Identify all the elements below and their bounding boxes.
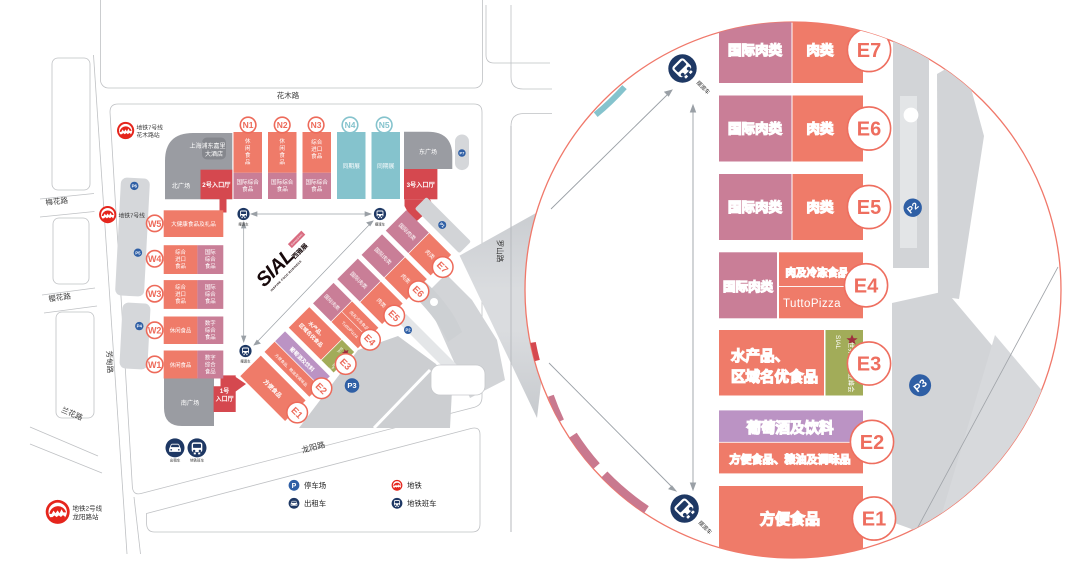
svg-text:综合: 综合 — [175, 248, 186, 256]
svg-text:食品: 食品 — [242, 185, 254, 193]
svg-text:休: 休 — [279, 137, 285, 145]
svg-text:地铁: 地铁 — [407, 481, 422, 490]
svg-text:食品: 食品 — [205, 333, 216, 341]
svg-text:N3: N3 — [311, 120, 322, 130]
svg-text:E1: E1 — [862, 509, 886, 531]
svg-text:食: 食 — [245, 151, 251, 159]
svg-text:食品: 食品 — [205, 297, 216, 305]
svg-text:休: 休 — [245, 137, 251, 145]
svg-text:北广场: 北广场 — [172, 182, 191, 190]
svg-text:肉类: 肉类 — [807, 121, 835, 137]
svg-text:摆渡车: 摆渡车 — [375, 222, 386, 227]
svg-text:地铁7号线: 地铁7号线 — [119, 212, 146, 220]
svg-text:N5: N5 — [379, 120, 390, 130]
svg-text:TuttoPizza: TuttoPizza — [783, 298, 841, 310]
svg-text:水产品、: 水产品、 — [731, 347, 789, 365]
svg-text:国际肉类: 国际肉类 — [728, 121, 782, 137]
svg-text:国际肉类: 国际肉类 — [728, 42, 782, 58]
svg-text:P4: P4 — [137, 324, 143, 329]
svg-text:方便食品、粮油及调味品: 方便食品、粮油及调味品 — [730, 452, 851, 466]
svg-text:品: 品 — [279, 159, 285, 166]
svg-text:花木路: 花木路 — [277, 90, 300, 100]
svg-text:龙阳路站: 龙阳路站 — [73, 512, 100, 521]
svg-text:闲: 闲 — [279, 144, 285, 152]
svg-text:罗山路: 罗山路 — [496, 240, 506, 263]
svg-text:P7: P7 — [459, 150, 465, 155]
svg-text:1号: 1号 — [220, 387, 229, 395]
svg-text:W1: W1 — [148, 360, 162, 370]
svg-text:葡萄酒及饮料: 葡萄酒及饮料 — [746, 419, 834, 437]
svg-text:国际综合: 国际综合 — [271, 178, 294, 186]
svg-text:数字: 数字 — [205, 354, 216, 362]
svg-text:国际肉类: 国际肉类 — [723, 279, 774, 294]
svg-text:SIAL: SIAL — [834, 335, 841, 349]
svg-text:品: 品 — [245, 159, 251, 166]
svg-text:N1: N1 — [243, 120, 254, 130]
svg-text:出租车: 出租车 — [170, 458, 181, 463]
svg-text:摆渡车: 摆渡车 — [238, 222, 249, 227]
svg-text:E3: E3 — [857, 354, 881, 376]
svg-text:P5: P5 — [135, 250, 141, 255]
svg-text:区域名优食品: 区域名优食品 — [731, 368, 818, 386]
svg-text:国际综合: 国际综合 — [306, 178, 329, 186]
svg-text:食品: 食品 — [175, 297, 186, 305]
svg-text:东广场: 东广场 — [419, 148, 437, 156]
svg-text:P2: P2 — [405, 328, 411, 333]
svg-text:W5: W5 — [148, 219, 162, 229]
svg-text:南广场: 南广场 — [181, 399, 200, 407]
svg-text:地铁7号线: 地铁7号线 — [137, 124, 164, 132]
svg-text:大健康食品及礼品: 大健康食品及礼品 — [171, 220, 216, 228]
svg-text:综合: 综合 — [311, 138, 323, 146]
svg-text:肉类: 肉类 — [807, 199, 835, 215]
svg-text:国际肉类: 国际肉类 — [728, 199, 782, 215]
svg-text:同期展: 同期展 — [377, 163, 395, 170]
svg-text:N4: N4 — [345, 120, 356, 130]
svg-text:摆渡车: 摆渡车 — [240, 359, 251, 364]
svg-text:食品: 食品 — [277, 185, 289, 193]
svg-text:闲: 闲 — [245, 144, 251, 152]
svg-text:E4: E4 — [854, 275, 879, 297]
svg-text:国际: 国际 — [205, 283, 216, 291]
svg-text:进口: 进口 — [175, 255, 186, 263]
svg-text:P3: P3 — [347, 381, 356, 390]
svg-text:花木路站: 花木路站 — [137, 131, 160, 139]
svg-text:W3: W3 — [148, 289, 162, 299]
svg-text:肉类: 肉类 — [807, 42, 835, 58]
svg-text:E7: E7 — [857, 40, 881, 62]
svg-text:数字: 数字 — [205, 319, 216, 327]
svg-text:进口: 进口 — [311, 145, 322, 153]
svg-text:休闲食品: 休闲食品 — [170, 361, 192, 369]
svg-text:2号入口厅: 2号入口厅 — [202, 181, 231, 189]
svg-text:食品: 食品 — [311, 152, 323, 160]
svg-text:食品: 食品 — [175, 262, 186, 270]
svg-text:E6: E6 — [857, 119, 881, 141]
svg-text:肉及冷冻食品: 肉及冷冻食品 — [786, 266, 849, 279]
svg-text:3号入口厅: 3号入口厅 — [407, 181, 436, 189]
svg-text:国际综合: 国际综合 — [237, 178, 260, 186]
svg-text:食品: 食品 — [311, 185, 323, 193]
svg-text:E5: E5 — [857, 197, 881, 219]
svg-text:N2: N2 — [277, 120, 288, 130]
svg-text:综合: 综合 — [205, 255, 216, 263]
svg-text:入口厅: 入口厅 — [215, 395, 234, 403]
svg-text:E2: E2 — [860, 432, 884, 454]
svg-text:上海浦东嘉里: 上海浦东嘉里 — [189, 142, 225, 150]
svg-text:同期展: 同期展 — [342, 163, 360, 170]
svg-text:国际: 国际 — [205, 248, 216, 256]
svg-text:食品: 食品 — [205, 262, 216, 270]
svg-text:P6: P6 — [132, 184, 138, 189]
svg-text:综合: 综合 — [175, 283, 186, 291]
svg-text:方便食品: 方便食品 — [760, 510, 820, 528]
svg-text:休闲食品: 休闲食品 — [170, 327, 192, 335]
svg-text:综合: 综合 — [205, 361, 216, 369]
svg-text:W2: W2 — [148, 326, 162, 336]
svg-text:地铁2号线: 地铁2号线 — [73, 504, 103, 513]
svg-text:综合: 综合 — [205, 290, 216, 298]
svg-text:地铁班车: 地铁班车 — [190, 458, 205, 463]
svg-text:W4: W4 — [148, 254, 162, 264]
svg-text:综合: 综合 — [205, 326, 216, 334]
svg-text:芳甸路: 芳甸路 — [104, 350, 115, 373]
svg-text:进口: 进口 — [175, 290, 186, 298]
svg-text:食: 食 — [279, 151, 285, 159]
svg-text:食品: 食品 — [205, 368, 216, 376]
svg-text:地铁班车: 地铁班车 — [407, 499, 437, 508]
svg-text:大酒店: 大酒店 — [205, 150, 223, 158]
svg-text:出租车: 出租车 — [304, 499, 326, 508]
svg-text:停车场: 停车场 — [304, 481, 326, 490]
